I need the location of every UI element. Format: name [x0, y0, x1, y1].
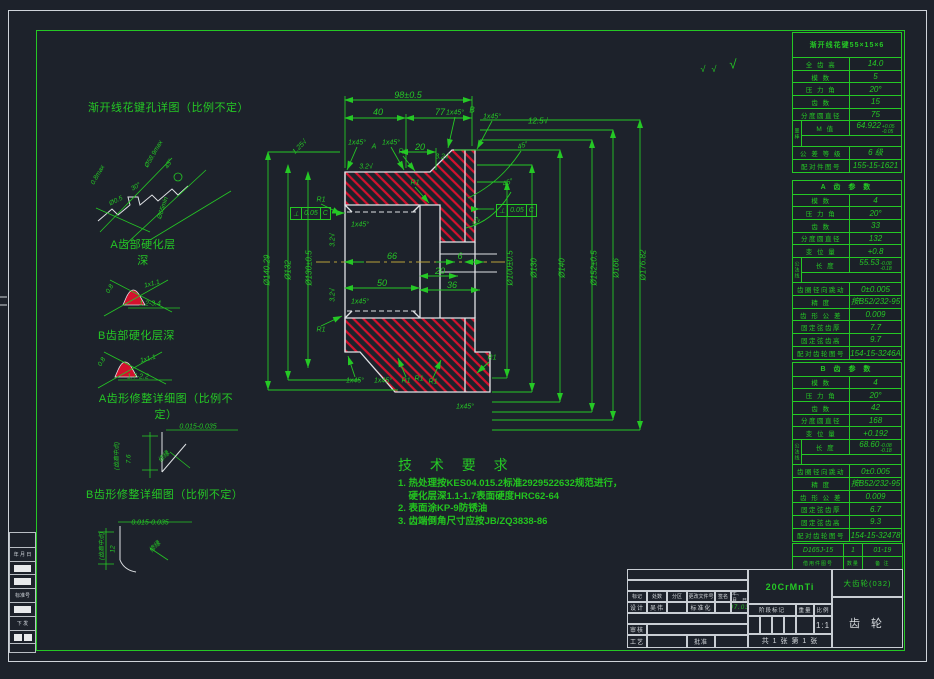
- table-row-label: 固定弦齿厚: [793, 503, 850, 515]
- tb-header-cell: 签名: [715, 591, 731, 602]
- table-row-label: 模 数: [793, 71, 850, 83]
- dimension-label: 1x45°: [446, 110, 464, 117]
- borrow-cell: 借用件图号: [793, 557, 844, 569]
- tb-empty-row: [627, 613, 748, 624]
- borrow-part-table: D165J-15101-19借用件图号数量备 注: [792, 543, 903, 570]
- dimension-label: 45°: [164, 158, 175, 170]
- table-title: 渐开线花键55×15×6: [793, 33, 901, 58]
- table-row-value: 5: [850, 71, 901, 83]
- table-row-value: 按B52/232-95: [850, 478, 901, 490]
- table-row: 固定弦齿厚7.7: [793, 321, 901, 334]
- dimension-label: Ø140.29: [263, 255, 272, 286]
- table-row: 齿圈径向跳动0±0.005: [793, 283, 901, 296]
- dimension-label: Ø0.5: [108, 195, 124, 207]
- table-row: 精 度按B52/232-95: [793, 478, 901, 491]
- table-row: 配对件图号155-15-1621: [793, 160, 901, 173]
- tech-req-line: 硬化层深1.1-1.7表面硬度HRC62-64: [398, 491, 638, 504]
- dimension-label: B: [469, 106, 474, 115]
- dimension-label: 1x45°: [348, 140, 366, 147]
- table-row-value: 0.009: [850, 309, 901, 321]
- gdt-symbol: ⊥: [497, 205, 508, 216]
- dimension-label: 6: [457, 251, 462, 261]
- dimension-label: R1: [399, 149, 408, 156]
- table-row: 配对齿轮图号154-15-32478: [793, 529, 901, 542]
- table-row: 分度圆直径132: [793, 233, 901, 246]
- dimension-label: R1: [411, 180, 420, 187]
- borrow-row: 借用件图号数量备 注: [793, 556, 902, 569]
- table-row: 量棒M 值64.922+0.05-0.05: [793, 121, 901, 146]
- table-row: 齿圈径向跳动0±0.005: [793, 465, 901, 478]
- dimension-label: 1.25√: [291, 138, 308, 155]
- tb-cell-empty: [715, 635, 748, 648]
- detail-title-a-profile: A齿形修整详细图（比例不 定）: [86, 390, 246, 422]
- table-row-label: 分度圆直径: [793, 415, 850, 427]
- tb-weight-value: [796, 616, 814, 634]
- dimension-label: Ø130±0.5: [305, 250, 314, 285]
- detail-title-b-hardening: B齿部硬化层深: [98, 327, 175, 343]
- dimension-label: (齿高中点): [97, 532, 106, 560]
- table-row-value: 0±0.005: [850, 465, 901, 477]
- tech-req-line: 1. 热处理按KES04.015.2标准2929522632规范进行，: [398, 478, 638, 491]
- dimension-label: Ø130: [530, 258, 539, 278]
- dimension-label: Ø176.82: [639, 250, 648, 281]
- table-row-label: 全 齿 高: [793, 58, 850, 70]
- dimension-label: R1: [317, 327, 326, 334]
- dimension-label: 45°: [517, 141, 529, 151]
- table-row-label: 精 度: [793, 478, 850, 490]
- table-row-label: 压 力 角: [793, 207, 850, 219]
- tb-design-label: 设计: [627, 602, 647, 613]
- dimension-label: R1: [488, 355, 497, 362]
- table-row-label: 配对齿轮图号: [793, 529, 850, 542]
- table-row-value: 9.7: [850, 334, 901, 346]
- table-row: 齿 形 公 差0.009: [793, 309, 901, 322]
- table-row-label: 齿 形 公 差: [793, 309, 850, 321]
- table-row-value: 168: [850, 415, 901, 427]
- dimension-label: 0.8max: [90, 164, 107, 186]
- tech-req-line: 3. 齿端倒角尺寸应按JB/ZQ3838-86: [398, 516, 638, 529]
- dimension-label: Ø152±0.5: [590, 250, 599, 285]
- table-row-value: 154-15-3246A: [850, 347, 901, 360]
- tech-req-line: 2. 表面涂KP-9防锈油: [398, 503, 638, 516]
- borrow-cell: D165J-15: [793, 544, 844, 556]
- table-row: 压 力 角20°: [793, 389, 901, 402]
- table-row-label: 变 位 量: [793, 427, 850, 439]
- tb-weight-label: 重量: [796, 604, 814, 616]
- tb-drawing-number: 大齿轮(032): [832, 569, 903, 597]
- table-row: 固定弦齿厚6.7: [793, 503, 901, 516]
- dimension-label: 3.2√: [330, 233, 337, 247]
- dimension-label: 66: [387, 251, 397, 261]
- margin-strip-cell: 下 发: [9, 617, 36, 631]
- dimension-label: 1x45°: [456, 404, 474, 411]
- tb-header-cell: 处数: [647, 591, 667, 602]
- table-row: 配对齿轮图号154-15-3246A: [793, 347, 901, 360]
- gear-b-parameter-table: B 齿 参 数模 数4压 力 角20°齿 数42分度圆直径168变 位 量+0.…: [792, 362, 902, 542]
- table-row-label: 模 数: [793, 377, 850, 389]
- tb-scale-label: 比例: [814, 604, 832, 616]
- tb-cell-empty: [667, 602, 687, 613]
- margin-strip-cell: [9, 532, 36, 548]
- dimension-label: 20: [415, 142, 425, 152]
- dimension-label: 0.8: [105, 283, 116, 294]
- gdt-frame-left: ⊥0.05C: [290, 207, 331, 220]
- table-row-value: 9.3: [850, 516, 901, 528]
- table-row: 模 数4: [793, 377, 901, 390]
- table-row: 精 度按B52/232-95: [793, 296, 901, 309]
- table-row-value: 20°: [850, 207, 901, 219]
- table-row-label: 变 位 量: [793, 245, 850, 257]
- table-row-value: 42: [850, 402, 901, 414]
- tb-design-name: 吴伟: [647, 602, 667, 613]
- tb-header-cell: 年、月、日: [731, 591, 748, 602]
- table-row: 齿 数15: [793, 96, 901, 109]
- table-side-label: 公法线: [793, 258, 802, 282]
- table-row-value: 6.7: [850, 503, 901, 515]
- table-row-label: 配对齿轮图号: [793, 347, 850, 360]
- table-row-label: 固定弦齿高: [793, 516, 850, 528]
- tb-process-label: 工艺: [627, 635, 647, 648]
- table-row: 压 力 角20°: [793, 83, 901, 96]
- tb-empty-row: [627, 580, 748, 591]
- dimension-label: 7.6: [126, 454, 133, 463]
- tb-material: 20CrMnTi: [748, 569, 832, 604]
- table-row: 固定弦齿高9.3: [793, 516, 901, 529]
- dimension-label: √: [701, 64, 706, 74]
- cad-sheet: 98±0.54077201x45°A1x45°R1R13.2√1x45°B1x4…: [0, 0, 934, 679]
- tb-date: 07.03: [731, 602, 748, 613]
- table-row-label: 齿 形 公 差: [793, 491, 850, 503]
- tb-header-cell: 标记: [627, 591, 647, 602]
- table-row: 固定弦齿高9.7: [793, 334, 901, 347]
- dimension-label: 0.8: [97, 356, 108, 367]
- table-row: 齿 数42: [793, 402, 901, 415]
- tb-sheets: 共 1 张 第 1 张: [748, 634, 832, 648]
- dimension-label: Ø140: [558, 258, 567, 278]
- table-row-label: 齿圈径向跳动: [793, 465, 850, 477]
- table-row-value: 154-15-32478: [850, 529, 901, 542]
- table-row: 公法线长 度55.53-0.08-0.18: [793, 258, 901, 283]
- dimension-label: 0.015-0.035: [179, 424, 216, 431]
- spline-parameter-table: 渐开线花键55×15×6全 齿 高14.0模 数5压 力 角20°齿 数15分度…: [792, 32, 902, 173]
- table-row-value: 20°: [850, 389, 901, 401]
- detail-title-b-profile: B齿形修整详细图（比例不定）: [86, 486, 243, 502]
- table-row: 全 齿 高14.0: [793, 58, 901, 71]
- dimension-label: Ø166: [612, 258, 621, 278]
- table-row-value: 4: [850, 377, 901, 389]
- dimension-label: (齿高中点): [112, 442, 121, 470]
- dimension-label: 修缘: [146, 538, 162, 554]
- table-row-label: 固定弦齿高: [793, 334, 850, 346]
- dimension-label: √: [712, 64, 717, 74]
- table-row-value: 按B52/232-95: [850, 296, 901, 308]
- table-row-value: 155-15-1621: [850, 160, 901, 173]
- table-row-label: 齿圈径向跳动: [793, 283, 850, 295]
- table-row: 分度圆直径75: [793, 109, 901, 122]
- tb-part-name: 齿 轮: [832, 597, 903, 648]
- tb-approve-label: 批准: [687, 635, 715, 648]
- dimension-label: 1.7-2.2: [127, 374, 149, 381]
- table-row: 变 位 量+0.192: [793, 427, 901, 440]
- gdt-symbol: ⊥: [291, 208, 302, 219]
- dimension-label: 50: [377, 278, 387, 288]
- dimension-label: 3.2√: [359, 164, 373, 171]
- tb-standard-label: 标准化: [687, 602, 715, 613]
- dimension-label: 3.2√: [330, 288, 337, 302]
- tb-stage-box: [748, 616, 760, 634]
- table-row: 齿 数33: [793, 220, 901, 233]
- gdt-frame-right: ⊥0.05C: [496, 204, 537, 217]
- dimension-label: R2: [472, 216, 483, 227]
- tb-stage-box: [760, 616, 772, 634]
- margin-strip-cell: [9, 644, 36, 653]
- table-row-label: 配对件图号: [793, 160, 850, 173]
- dimension-label: R1: [415, 376, 424, 383]
- table-row-value: 132: [850, 233, 901, 245]
- dimension-label: A: [372, 144, 377, 151]
- table-row-value: 14.0: [850, 58, 901, 70]
- dimension-label: 1x1.1: [143, 279, 160, 290]
- table-row-value: 6 级: [850, 147, 901, 159]
- detail-title-a-hardening: A齿部硬化层 深: [88, 236, 198, 268]
- tb-cell-empty: [715, 602, 731, 613]
- table-title: B 齿 参 数: [793, 363, 901, 377]
- borrow-cell: 01-19: [863, 544, 902, 556]
- tech-req-title: 技 术 要 求: [398, 455, 638, 475]
- table-row-label: 模 数: [793, 195, 850, 207]
- table-row-label: 齿 数: [793, 96, 850, 108]
- dimension-label: Ø100±0.5: [506, 250, 515, 285]
- dimension-label: √: [729, 57, 736, 72]
- dimension-label: 20: [435, 266, 445, 276]
- tb-stage-box: [784, 616, 796, 634]
- table-row-value: 0±0.005: [850, 283, 901, 295]
- tb-scale-value: 1:1: [814, 616, 832, 634]
- dimension-label: 1.2-3.4: [139, 301, 161, 308]
- margin-strip-cell: [9, 562, 36, 575]
- table-row-value: 4: [850, 195, 901, 207]
- dimension-label: R1: [429, 379, 438, 386]
- table-row: 变 位 量+0.8: [793, 245, 901, 258]
- tb-empty-row: [627, 569, 748, 580]
- dimension-label: Ø58.9max: [143, 139, 164, 168]
- dimension-label: 1x45°: [382, 140, 400, 147]
- gear-a-parameter-table: A 齿 参 数模 数4压 力 角20°齿 数33分度圆直径132变 位 量+0.…: [792, 180, 902, 360]
- borrow-cell: 数量: [844, 557, 863, 569]
- tb-audit-label: 审核: [627, 624, 647, 635]
- dimension-label: 40: [373, 107, 383, 117]
- table-title: A 齿 参 数: [793, 181, 901, 195]
- margin-strip-cell: [9, 603, 36, 617]
- dimension-label: 12: [110, 545, 117, 552]
- table-side-label: 量棒: [793, 121, 802, 145]
- tb-cell-empty: [647, 635, 687, 648]
- table-row-value: 75: [850, 109, 901, 121]
- dimension-label: 1x45°: [374, 378, 392, 385]
- dimension-label: Ø65min: [156, 196, 170, 220]
- tb-stage-label: 阶段标记: [748, 604, 796, 616]
- table-row-value: +0.192: [850, 427, 901, 439]
- dimension-label: 1x45°: [483, 114, 501, 121]
- table-row-label: 固定弦齿厚: [793, 321, 850, 333]
- table-side-label: 公法线: [793, 440, 802, 464]
- dimension-label: 0.015-0.035: [131, 520, 168, 527]
- tb-cell-empty: [647, 624, 748, 635]
- table-row-value: 20°: [850, 83, 901, 95]
- dimension-label: R1: [317, 197, 326, 204]
- tb-header-cell: 更改文件号: [687, 591, 715, 602]
- dimension-label: 36: [447, 280, 457, 290]
- table-row: 齿 形 公 差0.009: [793, 491, 901, 504]
- dimension-label: Ø132: [284, 260, 293, 280]
- table-row-value: 0.009: [850, 491, 901, 503]
- table-row-value: 33: [850, 220, 901, 232]
- table-row-label: 公 差 等 级: [793, 147, 850, 159]
- borrow-row: D165J-15101-19: [793, 544, 902, 556]
- dimension-label: 1x45°: [346, 378, 364, 385]
- dimension-label: 1x45°: [351, 222, 369, 229]
- detail-title-spline: 渐开线花键孔详图（比例不定）: [88, 99, 249, 115]
- dimension-label: 修缘: [155, 448, 171, 464]
- margin-strip-cell: [9, 575, 36, 589]
- table-row: 公 差 等 级6 级: [793, 147, 901, 160]
- table-row-label: 精 度: [793, 296, 850, 308]
- dimension-label: 98±0.5: [394, 90, 421, 100]
- table-row-label: 齿 数: [793, 402, 850, 414]
- dimension-label: 1x45°: [351, 299, 369, 306]
- table-row-label: 压 力 角: [793, 83, 850, 95]
- table-row: 分度圆直径168: [793, 415, 901, 428]
- table-row: 公法线长 度68.60-0.08-0.18: [793, 440, 901, 465]
- margin-strip-cell: 年 月 日: [9, 548, 36, 562]
- dimension-label: 45°: [502, 178, 514, 188]
- dimension-label: R1: [402, 378, 411, 385]
- dimension-label: 1x1.1: [139, 354, 156, 365]
- margin-strip-cell: [9, 631, 36, 644]
- margin-strip-cell: 标准号: [9, 589, 36, 603]
- table-row-label: 压 力 角: [793, 389, 850, 401]
- dimension-label: 12.5√: [528, 117, 548, 126]
- tb-header-cell: 分区: [667, 591, 687, 602]
- margin-strip: 年 月 日标准号下 发: [9, 532, 36, 653]
- table-row: 压 力 角20°: [793, 207, 901, 220]
- borrow-cell: 1: [844, 544, 863, 556]
- tb-stage-box: [772, 616, 784, 634]
- borrow-cell: 备 注: [863, 557, 902, 569]
- table-row-label: 分度圆直径: [793, 109, 850, 121]
- table-row: 模 数5: [793, 71, 901, 84]
- table-row-value: +0.8: [850, 245, 901, 257]
- table-row-label: 分度圆直径: [793, 233, 850, 245]
- table-row-label: 齿 数: [793, 220, 850, 232]
- technical-requirements: 技 术 要 求 1. 热处理按KES04.015.2标准2929522632规范…: [398, 455, 638, 528]
- table-row-value: 7.7: [850, 321, 901, 333]
- dimension-label: 3.2√: [435, 154, 449, 161]
- dimension-label: 77: [435, 107, 445, 117]
- table-row-value: 15: [850, 96, 901, 108]
- table-row: 模 数4: [793, 195, 901, 208]
- dimension-label: 30°: [130, 182, 142, 193]
